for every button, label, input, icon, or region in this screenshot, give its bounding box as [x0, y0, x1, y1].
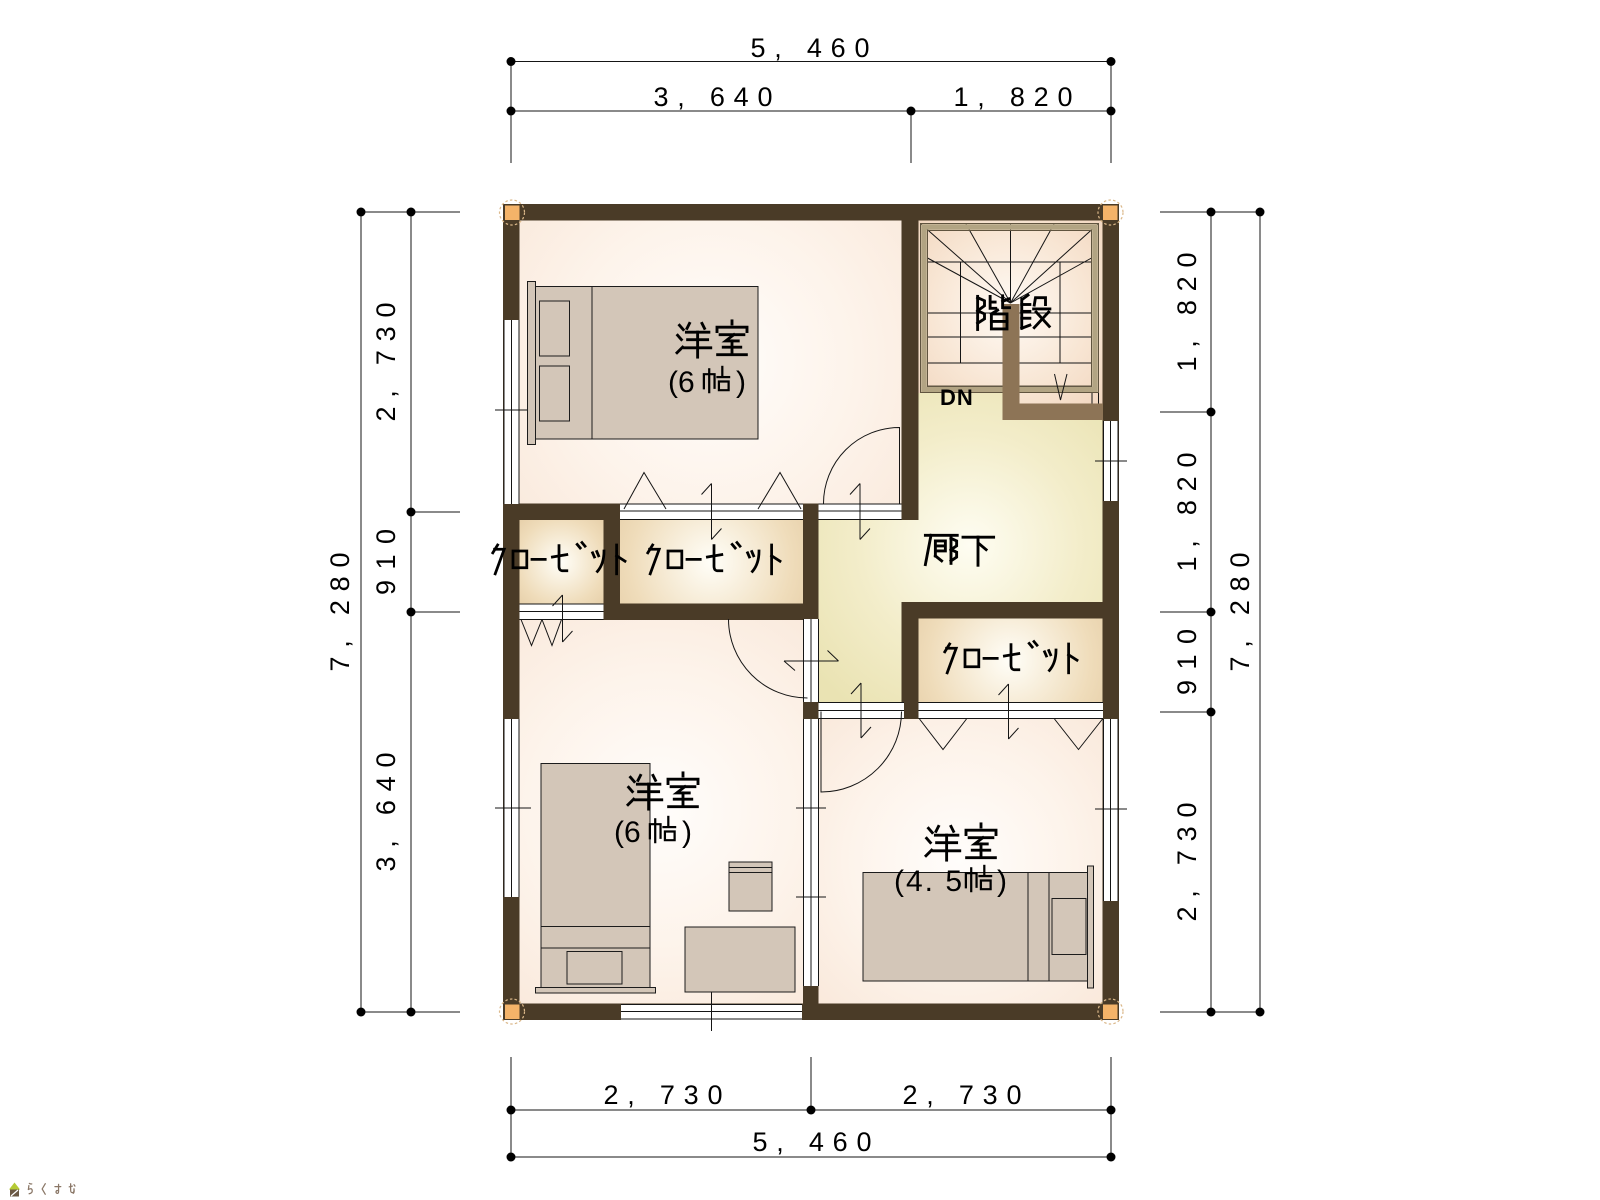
svg-text:(4. 5: (4. 5 [894, 865, 964, 898]
svg-text:): ) [682, 816, 692, 849]
svg-text:(6: (6 [614, 816, 641, 849]
svg-text:(6: (6 [668, 366, 695, 399]
svg-text:): ) [736, 366, 746, 399]
svg-text:910: 910 [371, 529, 401, 595]
svg-text:): ) [997, 865, 1007, 898]
svg-text:DN: DN [940, 385, 974, 410]
svg-text:910: 910 [1172, 629, 1202, 695]
